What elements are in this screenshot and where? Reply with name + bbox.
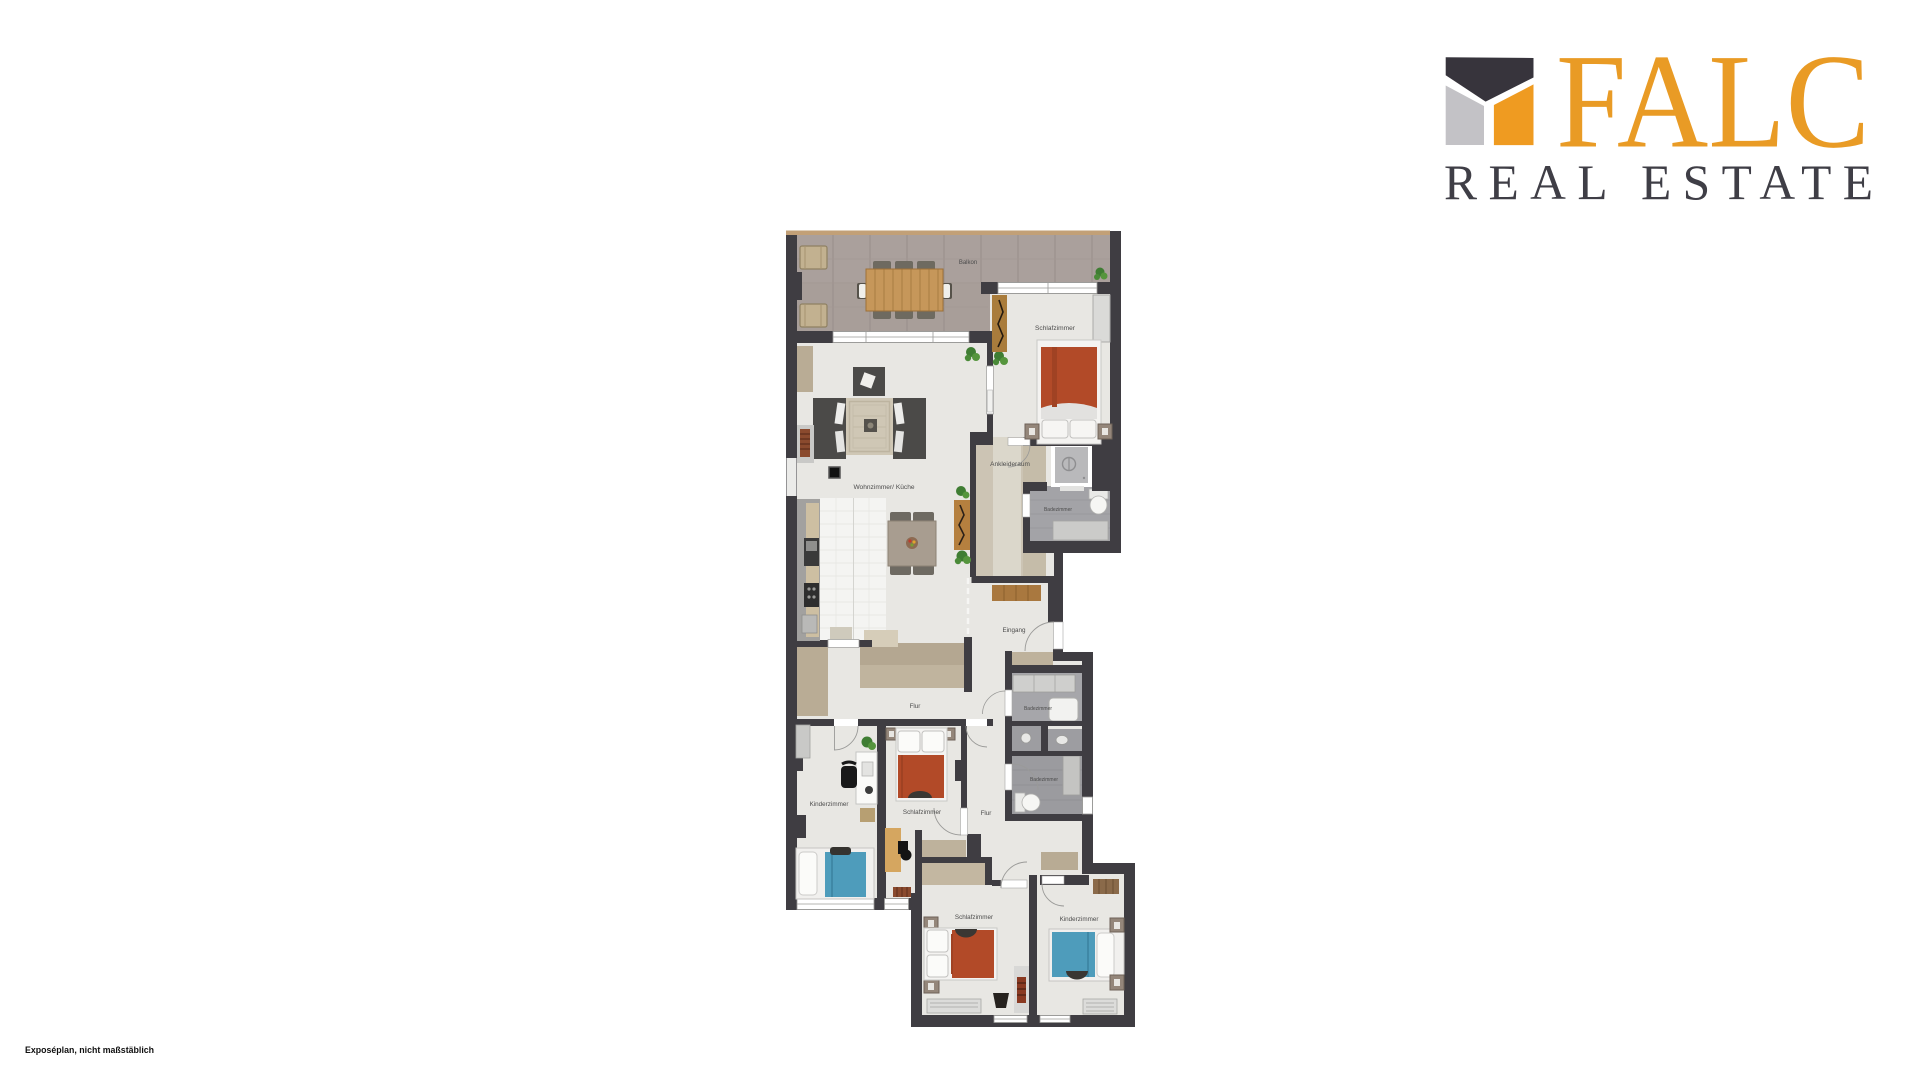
- svg-text:Badezimmer: Badezimmer: [1030, 777, 1058, 783]
- svg-text:Flur: Flur: [981, 810, 992, 817]
- svg-text:Schlafzimmer: Schlafzimmer: [1035, 325, 1076, 332]
- svg-text:Wohnzimmer/ Küche: Wohnzimmer/ Küche: [853, 484, 914, 491]
- svg-text:Balkon: Balkon: [959, 260, 977, 266]
- svg-text:REAL ESTATE: REAL ESTATE: [1444, 155, 1873, 210]
- svg-text:Schlafzimmer: Schlafzimmer: [903, 809, 941, 816]
- svg-text:Ankleideraum: Ankleideraum: [990, 461, 1030, 468]
- svg-text:Kinderzimmer: Kinderzimmer: [810, 801, 849, 808]
- svg-text:Flur: Flur: [910, 703, 921, 710]
- svg-text:Schlafzimmer: Schlafzimmer: [955, 914, 993, 921]
- svg-text:Exposéplan, nicht maßstäblich: Exposéplan, nicht maßstäblich: [25, 1045, 154, 1055]
- svg-text:Badezimmer: Badezimmer: [1024, 706, 1052, 712]
- svg-text:Badezimmer: Badezimmer: [1044, 507, 1072, 513]
- svg-text:Eingang: Eingang: [1002, 627, 1026, 634]
- svg-text:Kinderzimmer: Kinderzimmer: [1060, 916, 1099, 923]
